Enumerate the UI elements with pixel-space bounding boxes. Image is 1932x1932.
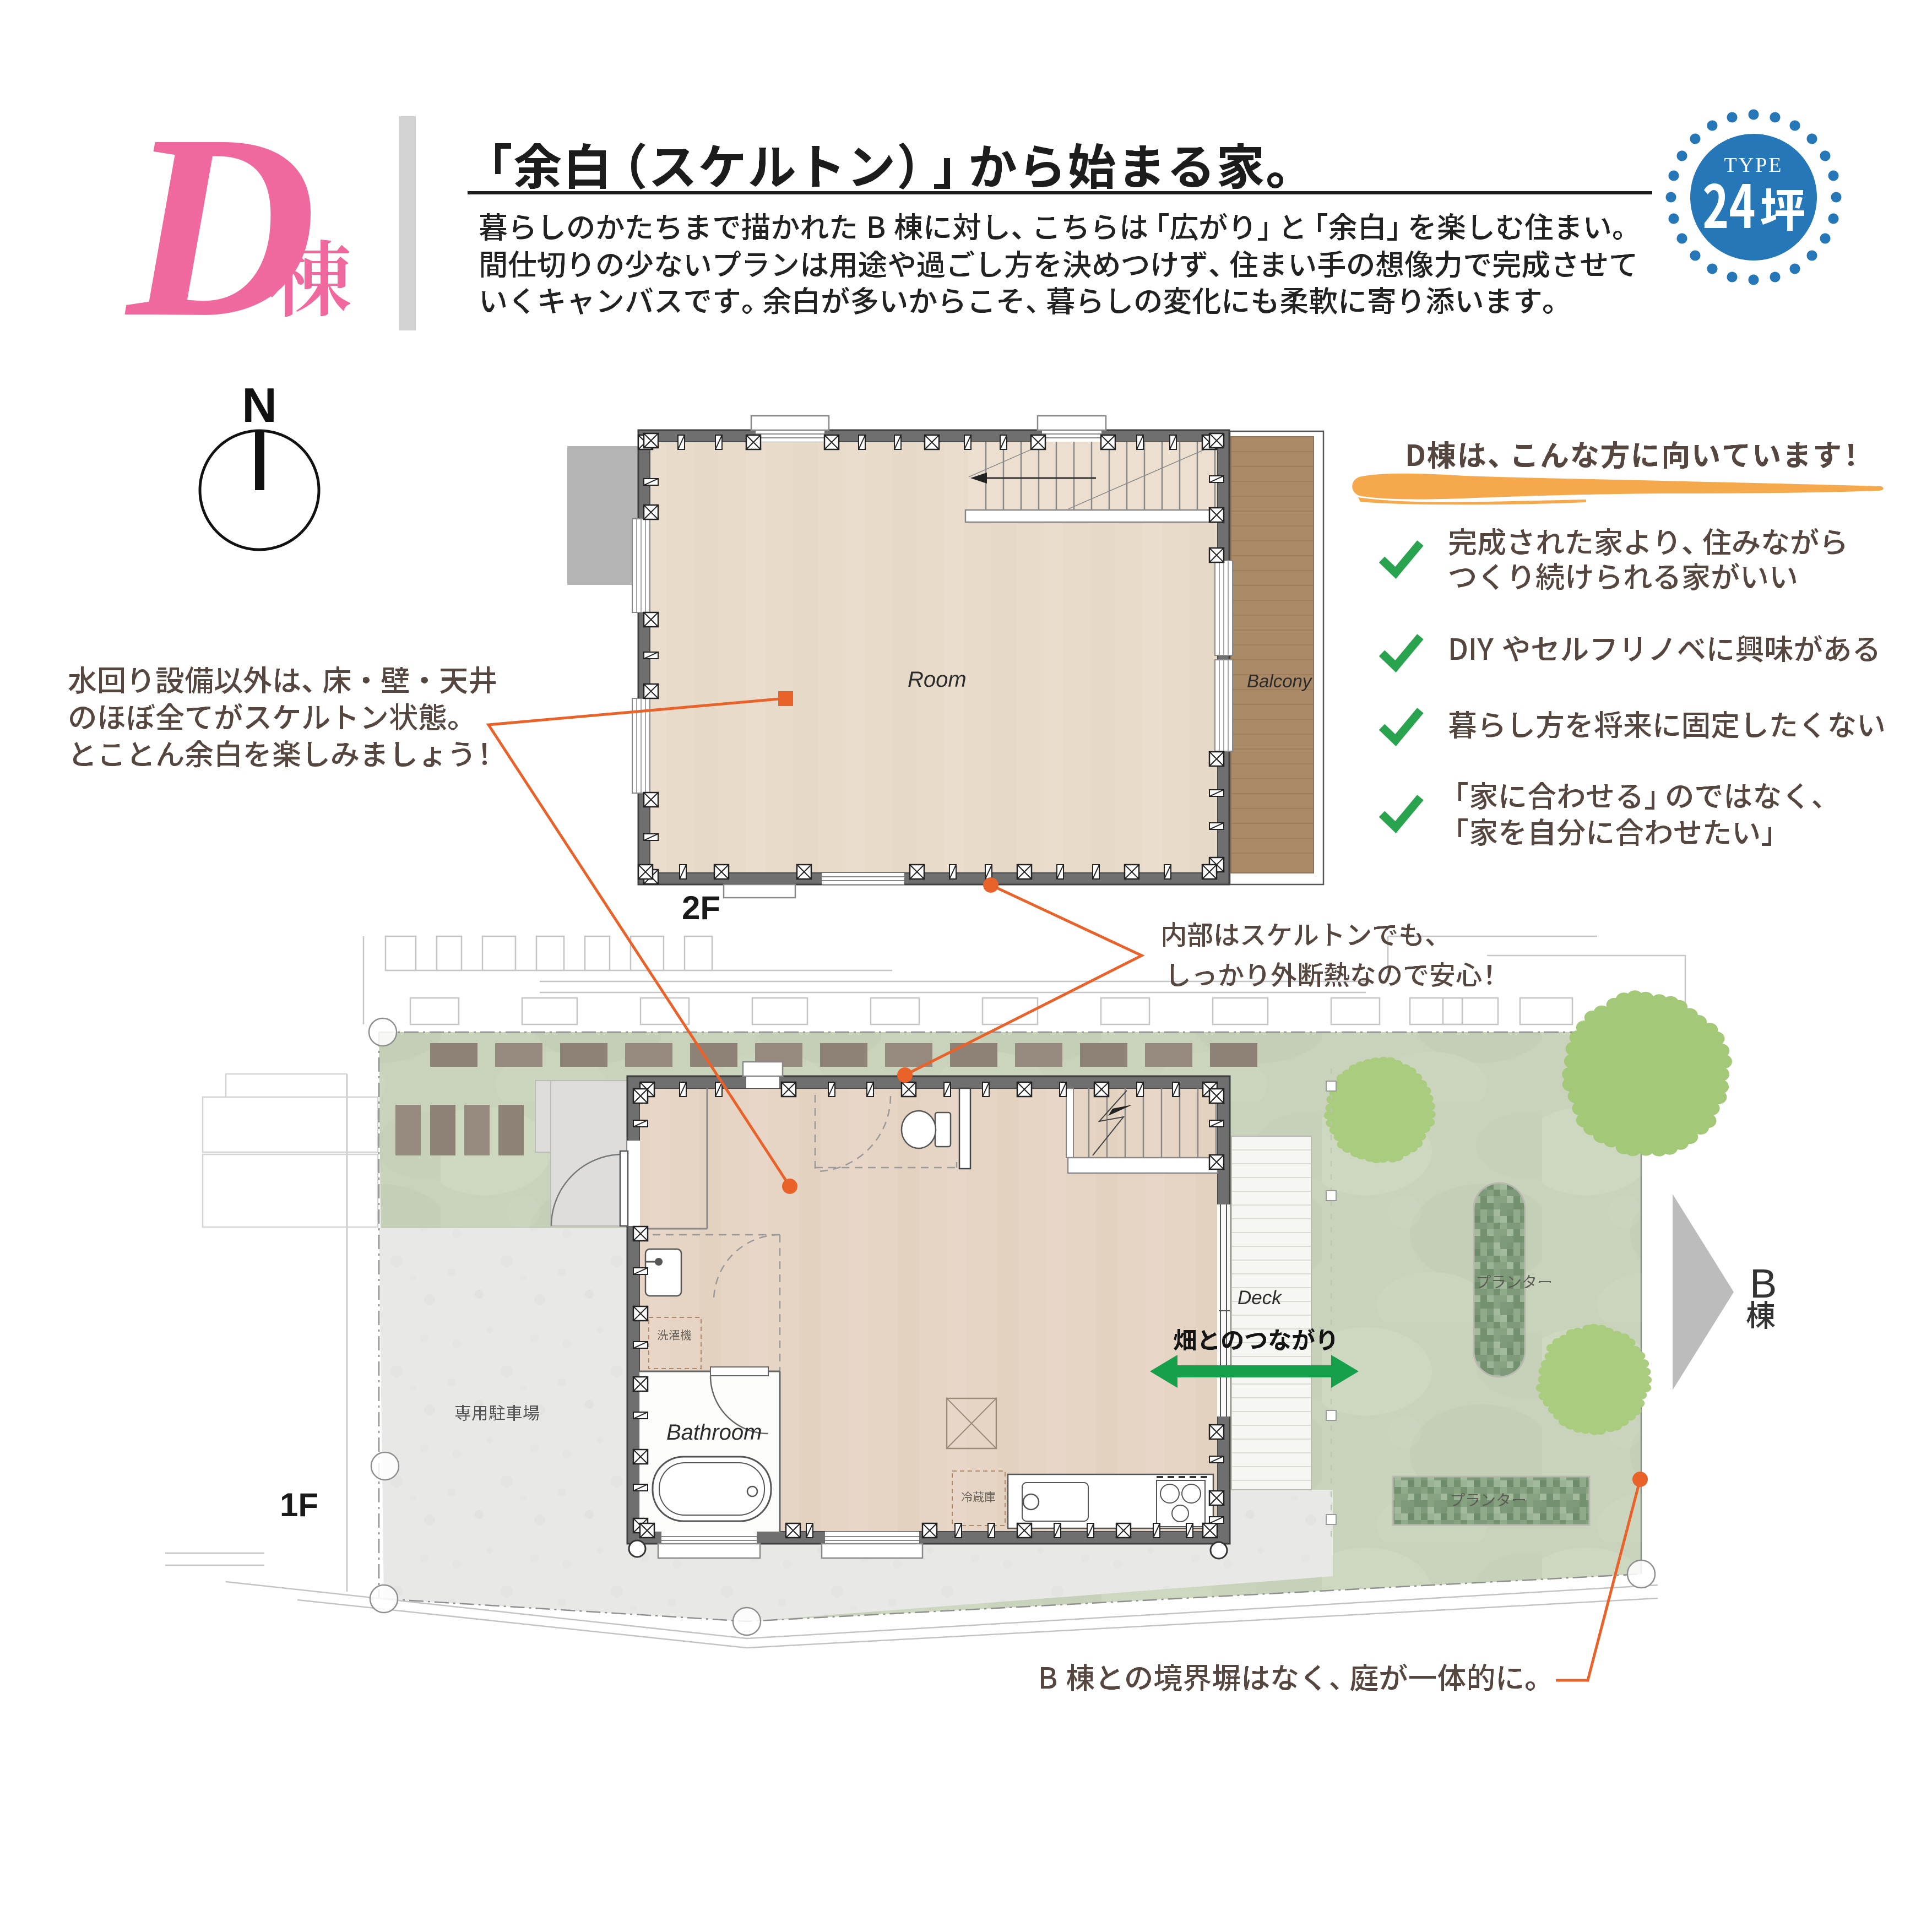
svg-text:Bathroom: Bathroom: [666, 1420, 762, 1445]
svg-text:TYPE: TYPE: [1724, 154, 1783, 177]
svg-text:Room: Room: [908, 667, 967, 692]
svg-text:B: B: [1750, 1261, 1777, 1306]
svg-text:Deck: Deck: [1238, 1287, 1282, 1309]
svg-text:2F: 2F: [682, 889, 720, 926]
svg-text:N: N: [242, 378, 277, 432]
svg-text:1F: 1F: [280, 1486, 318, 1523]
svg-text:Balcony: Balcony: [1247, 671, 1313, 691]
